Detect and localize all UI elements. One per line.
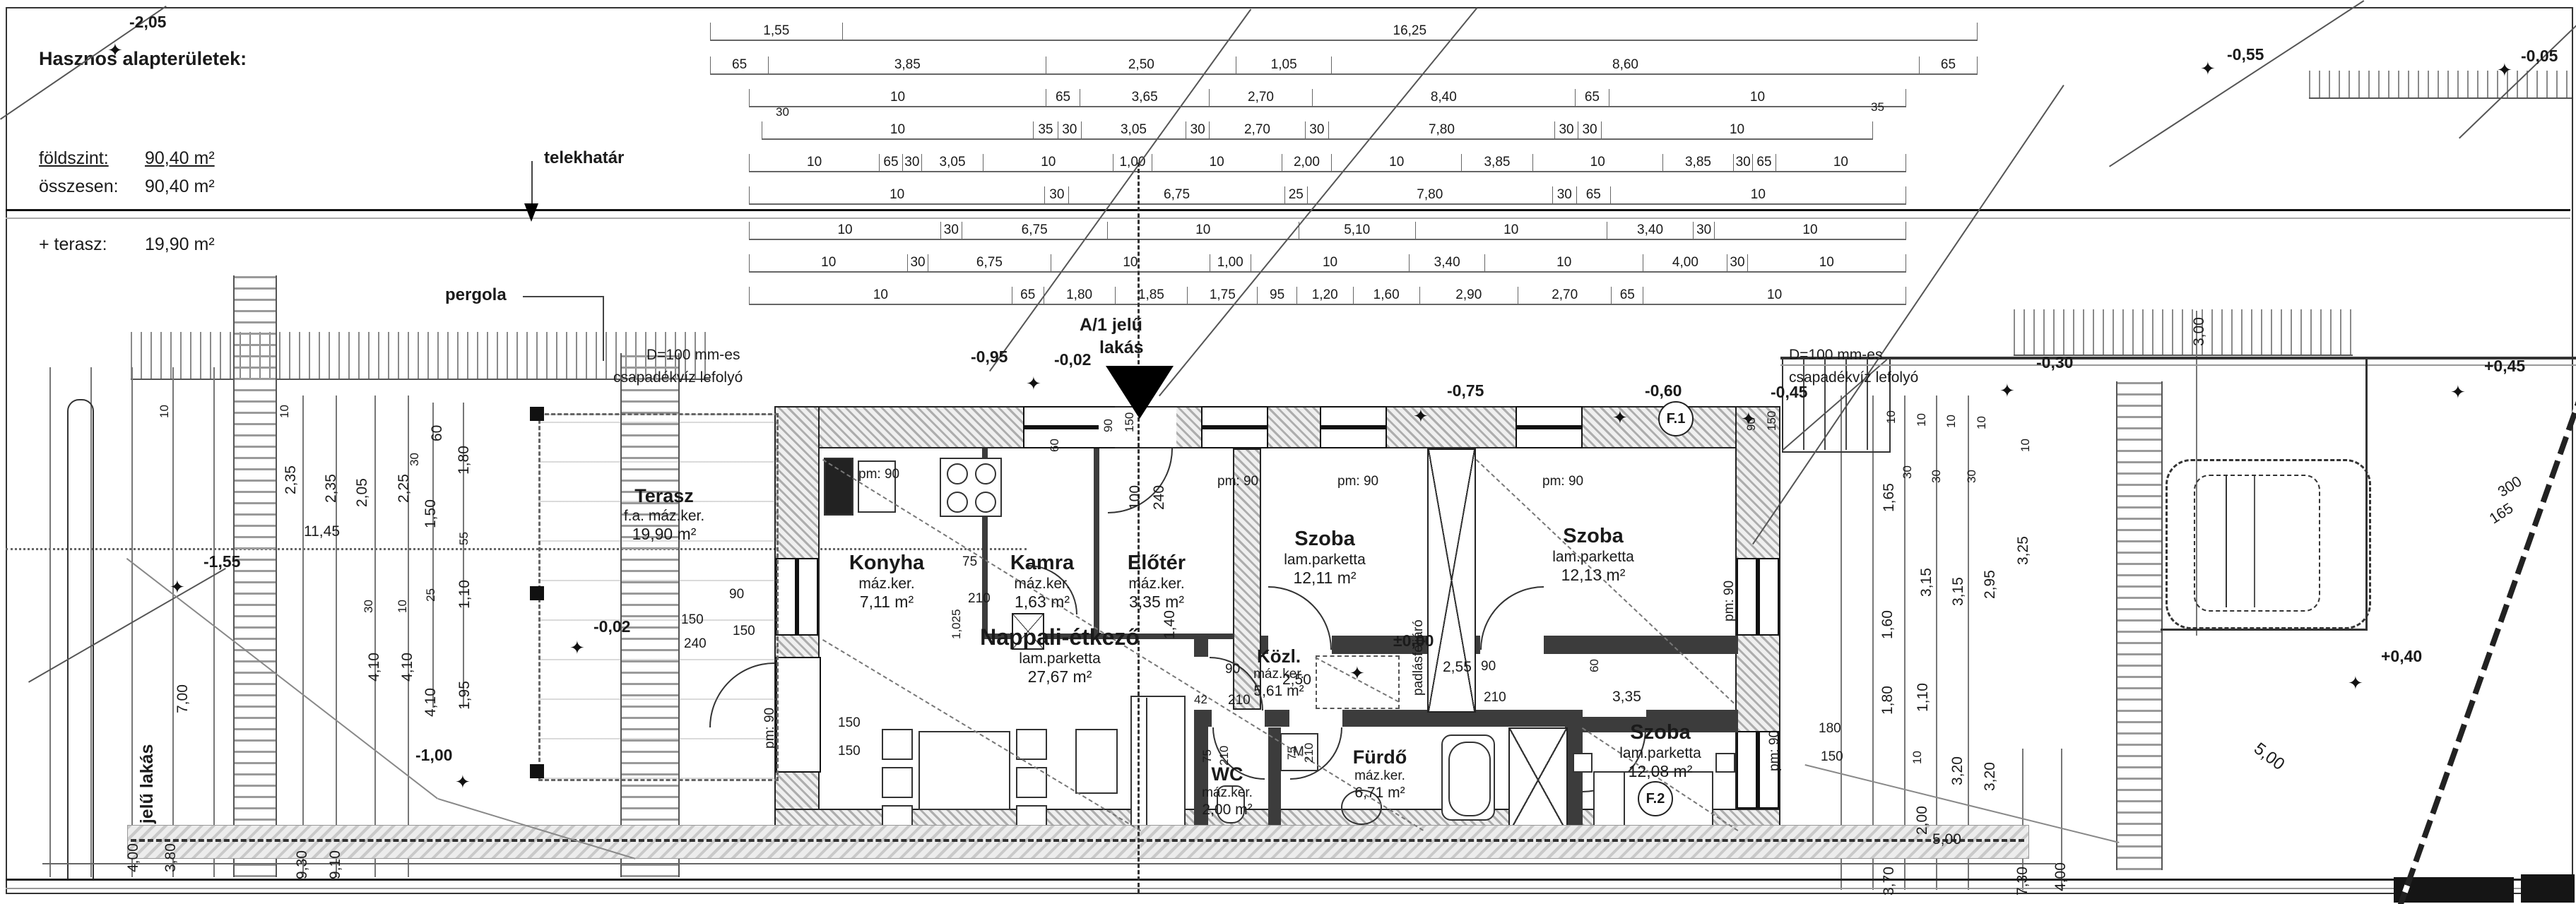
sill-height-label: pm: 90 <box>1542 475 1583 488</box>
dim-label: 2,55 <box>1443 660 1472 674</box>
room-name: Nappali-étkező <box>940 625 1180 650</box>
room-name: Előtér <box>1097 552 1217 575</box>
dim-value: 1,05 <box>1236 56 1332 73</box>
dim-label: 60 <box>430 425 444 441</box>
room-area: 19,90 m² <box>579 525 749 545</box>
dim-label: 4,00 <box>2053 862 2068 891</box>
dim-value: 2,00 <box>1282 154 1332 171</box>
door-size-label: 90 <box>1481 660 1496 673</box>
drain-label: csapadékvíz lefolyó <box>613 370 743 385</box>
room-wc: WC máz.ker. 2,00 m² <box>1181 764 1273 819</box>
window <box>1737 558 1779 636</box>
dim-value: 65 <box>1577 186 1611 203</box>
dim-value: 30 <box>1578 121 1602 138</box>
dim-value: 65 <box>1753 154 1776 171</box>
survey-marker-icon: ✦ <box>170 576 185 598</box>
info-title: Hasznos alapterületek: <box>39 48 247 70</box>
property-line-shadow <box>6 218 2570 219</box>
sill-height-label: pm: 90 <box>858 468 899 481</box>
dim-label: 10 <box>396 600 408 613</box>
dim-value: 10 <box>1152 154 1282 171</box>
dim-value: 30 <box>941 222 962 239</box>
dim-label: 10 <box>1945 415 1957 428</box>
dim-value: 25 <box>1285 186 1308 203</box>
dimension-chain: 653,852,501,058,6065 <box>710 55 1978 75</box>
survey-marker-icon: ✦ <box>1026 373 1041 395</box>
dim-label: 7,00 <box>175 684 190 713</box>
dim-label: 1,80 <box>456 446 471 475</box>
dim-value: 10 <box>1332 154 1462 171</box>
survey-marker-icon: ✦ <box>2497 59 2512 81</box>
window-size-label: 180 <box>1819 722 1841 735</box>
door-badge-f1: F.1 <box>1658 401 1694 436</box>
dim-label: 1,10 <box>457 580 472 609</box>
dim-value: 1,60 <box>1354 287 1420 304</box>
room-szoba-1: Szoba lam.parketta 12,11 m² <box>1251 528 1399 588</box>
dim-label: 4,10 <box>400 653 415 682</box>
room-finish: f.a. máz.ker. <box>579 507 749 525</box>
walkway <box>127 825 2029 859</box>
dim-label: 150 <box>733 624 755 638</box>
dim-line <box>213 367 215 877</box>
room-konyha: Konyha máz.ker. 7,11 m² <box>827 552 947 612</box>
dim-label: 2,05 <box>355 478 370 507</box>
dim-label: 1,60 <box>1880 610 1895 639</box>
dim-line <box>408 395 409 877</box>
dim-value: 2,70 <box>1210 121 1306 138</box>
dim-value: 1,85 <box>1116 287 1188 304</box>
dim-value: 3,85 <box>1462 154 1532 171</box>
dim-value: 10 <box>1609 89 1906 106</box>
walkway-centerline <box>131 839 2024 842</box>
room-name: Szoba <box>1519 525 1667 548</box>
pergola-label: pergola <box>445 287 507 304</box>
dim-value: 1,00 <box>1210 254 1251 271</box>
dim-value: 8,40 <box>1313 89 1576 106</box>
window-size-label: 150 <box>1821 750 1843 763</box>
dim-label: 1,40 <box>1162 610 1177 639</box>
dim-label: 1,65 <box>1881 483 1896 512</box>
dim-label: 90 <box>1102 419 1114 432</box>
room-kamra: Kamra máz.ker. 1,63 m² <box>989 552 1095 612</box>
bottom-border-2 <box>6 888 2570 889</box>
info-row-value: 19,90 m² <box>145 236 215 254</box>
door-badge-f2: F.2 <box>1638 781 1673 816</box>
dim-value: 2,70 <box>1210 89 1312 106</box>
dim-value: 10 <box>1611 186 1906 203</box>
dim-value: 10 <box>1776 154 1906 171</box>
dim-value: 30 <box>1186 121 1210 138</box>
info-row-label: földszint: <box>39 150 109 167</box>
dimension-chain: 1035303,05302,70307,80303010 <box>762 120 1873 140</box>
dimension-chain: 1065303,05101,00102,00103,85103,85306510 <box>749 153 1906 172</box>
dim-label: 10 <box>1915 413 1927 427</box>
dim-label: 3,25 <box>2016 536 2031 565</box>
bottom-dim-line <box>42 863 2056 864</box>
dimension-chain: 1,5516,25 <box>710 21 1978 41</box>
section-line <box>1138 162 1140 893</box>
dim-label: 2,95 <box>1983 570 1997 599</box>
dim-value: 30 <box>1306 121 1329 138</box>
window <box>1320 406 1387 448</box>
dim-label: 2,35 <box>283 465 298 494</box>
room-finish: máz.ker. <box>1226 667 1332 683</box>
room-szoba-3: Szoba lam.parketta 12,08 m² <box>1586 722 1735 782</box>
terrace-post <box>530 764 544 778</box>
window <box>1201 406 1268 448</box>
survey-marker-icon: ✦ <box>107 40 123 61</box>
dim-value: 10 <box>1643 287 1906 304</box>
dim-label: 1,10 <box>1915 683 1930 712</box>
room-name: Terasz <box>579 486 749 507</box>
car-body <box>2194 475 2320 612</box>
dim-label: 10 <box>2019 439 2031 452</box>
stove-burner-icon <box>947 492 968 513</box>
bottom-border <box>6 879 2570 881</box>
level-value: -0,60 <box>1645 381 1682 400</box>
dim-label: 1,80 <box>1880 686 1895 715</box>
floor-plan-sheet: Hasznos alapterületek: földszint: 90,40 … <box>0 0 2576 904</box>
dim-label: 30 <box>1901 465 1913 479</box>
dim-value: 10 <box>749 186 1045 203</box>
sofa-cushion-line <box>1146 698 1147 828</box>
chair <box>1016 729 1047 760</box>
dim-value: 16,25 <box>843 23 1978 40</box>
room-area: 2,00 m² <box>1181 801 1273 819</box>
room-finish: máz.ker. <box>827 575 947 593</box>
drain-label: D=100 mm-es <box>646 347 740 362</box>
dim-value: 65 <box>710 56 769 73</box>
room-finish: máz.ker. <box>1097 575 1217 593</box>
level-value: -2,05 <box>129 13 166 32</box>
dim-value: 10 <box>983 154 1113 171</box>
coffee-table <box>1075 729 1118 794</box>
info-row-value: 90,40 m² <box>145 178 215 196</box>
dim-line <box>49 367 51 877</box>
drain-label: D=100 mm-es <box>1789 347 1882 362</box>
level-value: -0,30 <box>2036 353 2073 372</box>
door-size-label: 75 <box>962 555 977 569</box>
room-area: 6,71 m² <box>1313 784 1447 802</box>
survey-marker-icon: ✦ <box>569 637 585 659</box>
dim-value: 6,75 <box>1069 186 1284 203</box>
room-finish: lam.parketta <box>1586 744 1735 762</box>
stove-burner-icon <box>947 463 968 484</box>
dim-value: 95 <box>1258 287 1296 304</box>
dim-value: 65 <box>1046 89 1080 106</box>
dim-label: 150 <box>838 744 861 758</box>
dim-label: 3,15 <box>1951 577 1966 606</box>
dim-label: 1,50 <box>423 499 438 528</box>
dim-label: 4,00 <box>126 843 141 872</box>
dim-label: 150 <box>1123 412 1135 432</box>
room-area: 3,35 m² <box>1097 593 1217 612</box>
survey-marker-icon: ✦ <box>1612 407 1628 429</box>
dim-value: 30 <box>1694 222 1715 239</box>
level-value: -0,45 <box>1771 383 1807 402</box>
door-size-label: 210 <box>1484 691 1506 704</box>
dim-line <box>1841 395 1842 890</box>
room-szoba-2: Szoba lam.parketta 12,13 m² <box>1519 525 1667 585</box>
dim-value: 10 <box>749 254 908 271</box>
room-finish: lam.parketta <box>940 650 1180 667</box>
room-terasz: Terasz f.a. máz.ker. 19,90 m² <box>579 486 749 544</box>
survey-marker-icon: ✦ <box>2348 672 2363 694</box>
dimension-chain: 10653,652,708,406510 <box>749 88 1906 107</box>
dim-value: 30 <box>1727 254 1747 271</box>
pergola-leader <box>523 296 604 297</box>
info-row-label: + terasz: <box>39 236 107 254</box>
dim-value: 35 <box>1034 121 1058 138</box>
room-furdo: Fürdő máz.ker. 6,71 m² <box>1313 747 1447 802</box>
dim-label: 2,25 <box>396 474 411 503</box>
level-value: -0,05 <box>2521 47 2558 66</box>
survey-marker-icon: ✦ <box>1349 662 1365 684</box>
dim-label: 35 <box>1871 101 1884 113</box>
sill-height-label: pm: 90 <box>1723 581 1736 621</box>
door-size-label: 210 <box>1228 694 1251 707</box>
terrace-post <box>530 407 544 421</box>
dim-value: 30 <box>1058 121 1082 138</box>
dim-value: 65 <box>1612 287 1643 304</box>
survey-marker-icon: ✦ <box>2450 381 2466 403</box>
dim-label: 10 <box>278 405 290 418</box>
entrance-label: A/1 jelű <box>1080 316 1142 334</box>
dim-value: 10 <box>1602 121 1873 138</box>
door-size-label: 75 <box>1286 747 1298 760</box>
room-area: 7,11 m² <box>827 593 947 612</box>
info-row-value: 90,40 m² <box>145 150 215 167</box>
dim-label: 25 <box>425 588 437 602</box>
dim-label: 3,15 <box>1919 568 1934 597</box>
room-finish: máz.ker. <box>989 575 1095 593</box>
dim-value: 30 <box>1555 121 1578 138</box>
dim-value: 10 <box>749 287 1012 304</box>
dim-label: 1,025 <box>950 609 962 639</box>
partition <box>1194 639 1208 657</box>
telekhatar-leader <box>531 161 533 203</box>
dim-line <box>1872 395 1874 890</box>
dim-label: 4,10 <box>367 653 382 682</box>
dim-label: 2,50 <box>1282 672 1311 687</box>
room-area: 12,08 m² <box>1586 762 1735 782</box>
dim-value: 7,80 <box>1308 186 1553 203</box>
dim-value: 1,00 <box>1113 154 1152 171</box>
dim-value: 30 <box>1045 186 1069 203</box>
info-row-label: összesen: <box>39 178 119 196</box>
dim-value: 10 <box>1533 154 1663 171</box>
survey-marker-icon: ✦ <box>1999 380 2015 402</box>
car-windshield-line <box>2226 476 2227 607</box>
dim-value: 1,80 <box>1044 287 1116 304</box>
level-value: -1,00 <box>415 746 452 765</box>
drain-label: csapadékvíz lefolyó <box>1789 370 1918 385</box>
dim-label: 150 <box>1766 411 1778 431</box>
duct-shaft <box>1508 727 1568 833</box>
dotted-line <box>6 548 1027 550</box>
right-terrain-line2 <box>1780 364 2576 366</box>
dim-label: 4,10 <box>423 688 438 717</box>
room-name: Kamra <box>989 552 1095 575</box>
dim-label: 240 <box>684 637 707 650</box>
window <box>1516 406 1583 448</box>
level-value: -0,75 <box>1447 381 1484 400</box>
door-size-label: 210 <box>1218 746 1230 766</box>
partition <box>1544 636 1738 654</box>
stove-burner-icon <box>975 492 996 513</box>
dim-label: 10 <box>1885 410 1897 424</box>
sill-height-label: pm: 90 <box>763 708 776 749</box>
retaining-steps <box>2116 381 2163 870</box>
room-name: Szoba <box>1251 528 1399 551</box>
dimension-chain: 10306,75101,00103,40104,003010 <box>749 253 1906 273</box>
dimension-chain: 10306,75105,10103,403010 <box>749 220 1906 240</box>
dim-label: 30 <box>1966 470 1978 483</box>
room-finish: máz.ker. <box>1313 768 1447 785</box>
dim-value: 30 <box>908 254 928 271</box>
survey-marker-icon: ✦ <box>455 771 471 793</box>
dim-label: 10 <box>1975 416 1987 429</box>
dim-value: 2,50 <box>1046 56 1236 73</box>
dim-value: 10 <box>749 154 880 171</box>
survey-marker-icon: ✦ <box>1413 405 1429 427</box>
level-value: -0,55 <box>2227 45 2264 64</box>
telekhatar-arrow-icon <box>524 203 538 222</box>
dim-value: 10 <box>1485 254 1643 271</box>
sill-height-label: pm: 90 <box>1337 475 1378 488</box>
right-terrain-line <box>1780 357 2576 359</box>
door-size-label: 75 <box>1201 749 1213 763</box>
embankment-hatch <box>233 275 277 877</box>
dim-label: 30 <box>362 600 374 613</box>
car-roof-line <box>2254 476 2255 607</box>
dim-value: 30 <box>1734 154 1753 171</box>
terrace-door-opening <box>776 657 821 773</box>
level-value: +0,40 <box>2381 647 2422 666</box>
dim-label: 2,00 <box>1915 806 1930 835</box>
stove-burner-icon <box>975 463 996 484</box>
room-eloter: Előtér máz.ker. 3,35 m² <box>1097 552 1217 612</box>
dim-value: 10 <box>749 89 1046 106</box>
level-value: +0,45 <box>2484 357 2525 376</box>
dim-label: 10 <box>1911 751 1923 764</box>
level-value: -0,02 <box>593 617 630 636</box>
dim-label: 10 <box>158 405 170 418</box>
wall-top <box>774 406 1780 448</box>
dim-value: 6,75 <box>928 254 1052 271</box>
dim-label: 9,30 <box>295 850 309 879</box>
room-finish: lam.parketta <box>1251 551 1399 569</box>
terrace-post <box>530 586 544 600</box>
dim-line <box>172 367 174 877</box>
chair <box>882 729 913 760</box>
dim-line <box>374 395 376 877</box>
apartment-lane <box>67 399 94 881</box>
dim-label: 60 <box>1588 659 1600 672</box>
dim-label: 55 <box>458 532 470 545</box>
dim-label: 2,35 <box>324 474 338 503</box>
dim-value: 3,85 <box>1663 154 1734 171</box>
dim-label: 30 <box>776 106 789 118</box>
survey-marker-icon: ✦ <box>2200 58 2216 80</box>
dim-value: 3,05 <box>922 154 983 171</box>
room-name: Szoba <box>1586 722 1735 744</box>
entrance-label: lakás <box>1099 339 1144 357</box>
dim-value: 4,00 <box>1643 254 1727 271</box>
dim-label: 3,35 <box>1612 689 1641 704</box>
entrance-arrow-icon <box>1106 366 1174 419</box>
dim-label: 90 <box>1745 417 1757 431</box>
dim-label: 1,95 <box>457 681 472 710</box>
dim-value: 10 <box>1108 222 1299 239</box>
dim-value: 10 <box>1251 254 1410 271</box>
room-name: Konyha <box>827 552 947 575</box>
dim-label: 3,80 <box>163 843 178 872</box>
room-area: 12,11 m² <box>1251 569 1399 588</box>
dim-line <box>302 395 304 877</box>
room-area: 27,67 m² <box>940 667 1180 687</box>
dim-label: 3,20 <box>1950 756 1965 785</box>
level-value: -1,55 <box>203 552 240 571</box>
level-value: -0,02 <box>1054 350 1091 369</box>
level-value: -0,95 <box>971 347 1008 367</box>
dim-value: 10 <box>1748 254 1906 271</box>
dim-label: 30 <box>408 453 420 466</box>
door-size-label: 90 <box>1225 662 1240 676</box>
dim-value: 7,80 <box>1329 121 1555 138</box>
room-area: 1,63 m² <box>989 593 1095 612</box>
dim-value: 1,20 <box>1297 287 1354 304</box>
dim-label: 30 <box>1930 470 1942 483</box>
bathtub-inner <box>1448 742 1491 816</box>
dim-value: 2,90 <box>1420 287 1518 304</box>
level-value: ±0,00 <box>1393 631 1434 650</box>
door-size-label: 100 <box>1128 485 1142 510</box>
room-nappali: Nappali-étkező lam.parketta 27,67 m² <box>940 625 1180 687</box>
dim-label: 60 <box>1048 439 1060 452</box>
dim-label: 5,00 <box>1932 832 1961 847</box>
room-name: Fürdő <box>1313 747 1447 768</box>
dim-label: 150 <box>681 613 704 626</box>
area-info-block: Hasznos alapterületek: <box>39 48 247 77</box>
dim-value: 65 <box>1576 89 1609 106</box>
dim-value: 10 <box>749 222 941 239</box>
dim-label: 3,70 <box>1881 867 1896 896</box>
dim-label: 90 <box>729 588 744 601</box>
dim-label: 3,20 <box>1983 762 1997 791</box>
dim-value: 5,10 <box>1299 222 1416 239</box>
dim-line <box>336 395 337 877</box>
dim-value: 65 <box>880 154 903 171</box>
dim-value: 10 <box>1715 222 1906 239</box>
property-line <box>6 209 2570 211</box>
sill-height-label: pm: 90 <box>1217 475 1258 488</box>
dim-value: 10 <box>1416 222 1607 239</box>
room-finish: máz.ker. <box>1181 785 1273 802</box>
dim-value: 10 <box>1051 254 1210 271</box>
titleblock-stub <box>2521 874 2575 903</box>
dim-label: 11,45 <box>304 524 340 539</box>
room-finish: lam.parketta <box>1519 548 1667 566</box>
right-ticks <box>2014 309 2353 356</box>
dim-value: 10 <box>762 121 1034 138</box>
dim-line <box>432 403 434 708</box>
dim-value: 3,40 <box>1607 222 1694 239</box>
room-name: Közl. <box>1226 646 1332 667</box>
sill-height-label: pm: 90 <box>1768 730 1781 771</box>
dim-value: 3,40 <box>1410 254 1485 271</box>
dimension-chain: 10651,801,851,75951,201,602,902,706510 <box>749 285 1906 305</box>
